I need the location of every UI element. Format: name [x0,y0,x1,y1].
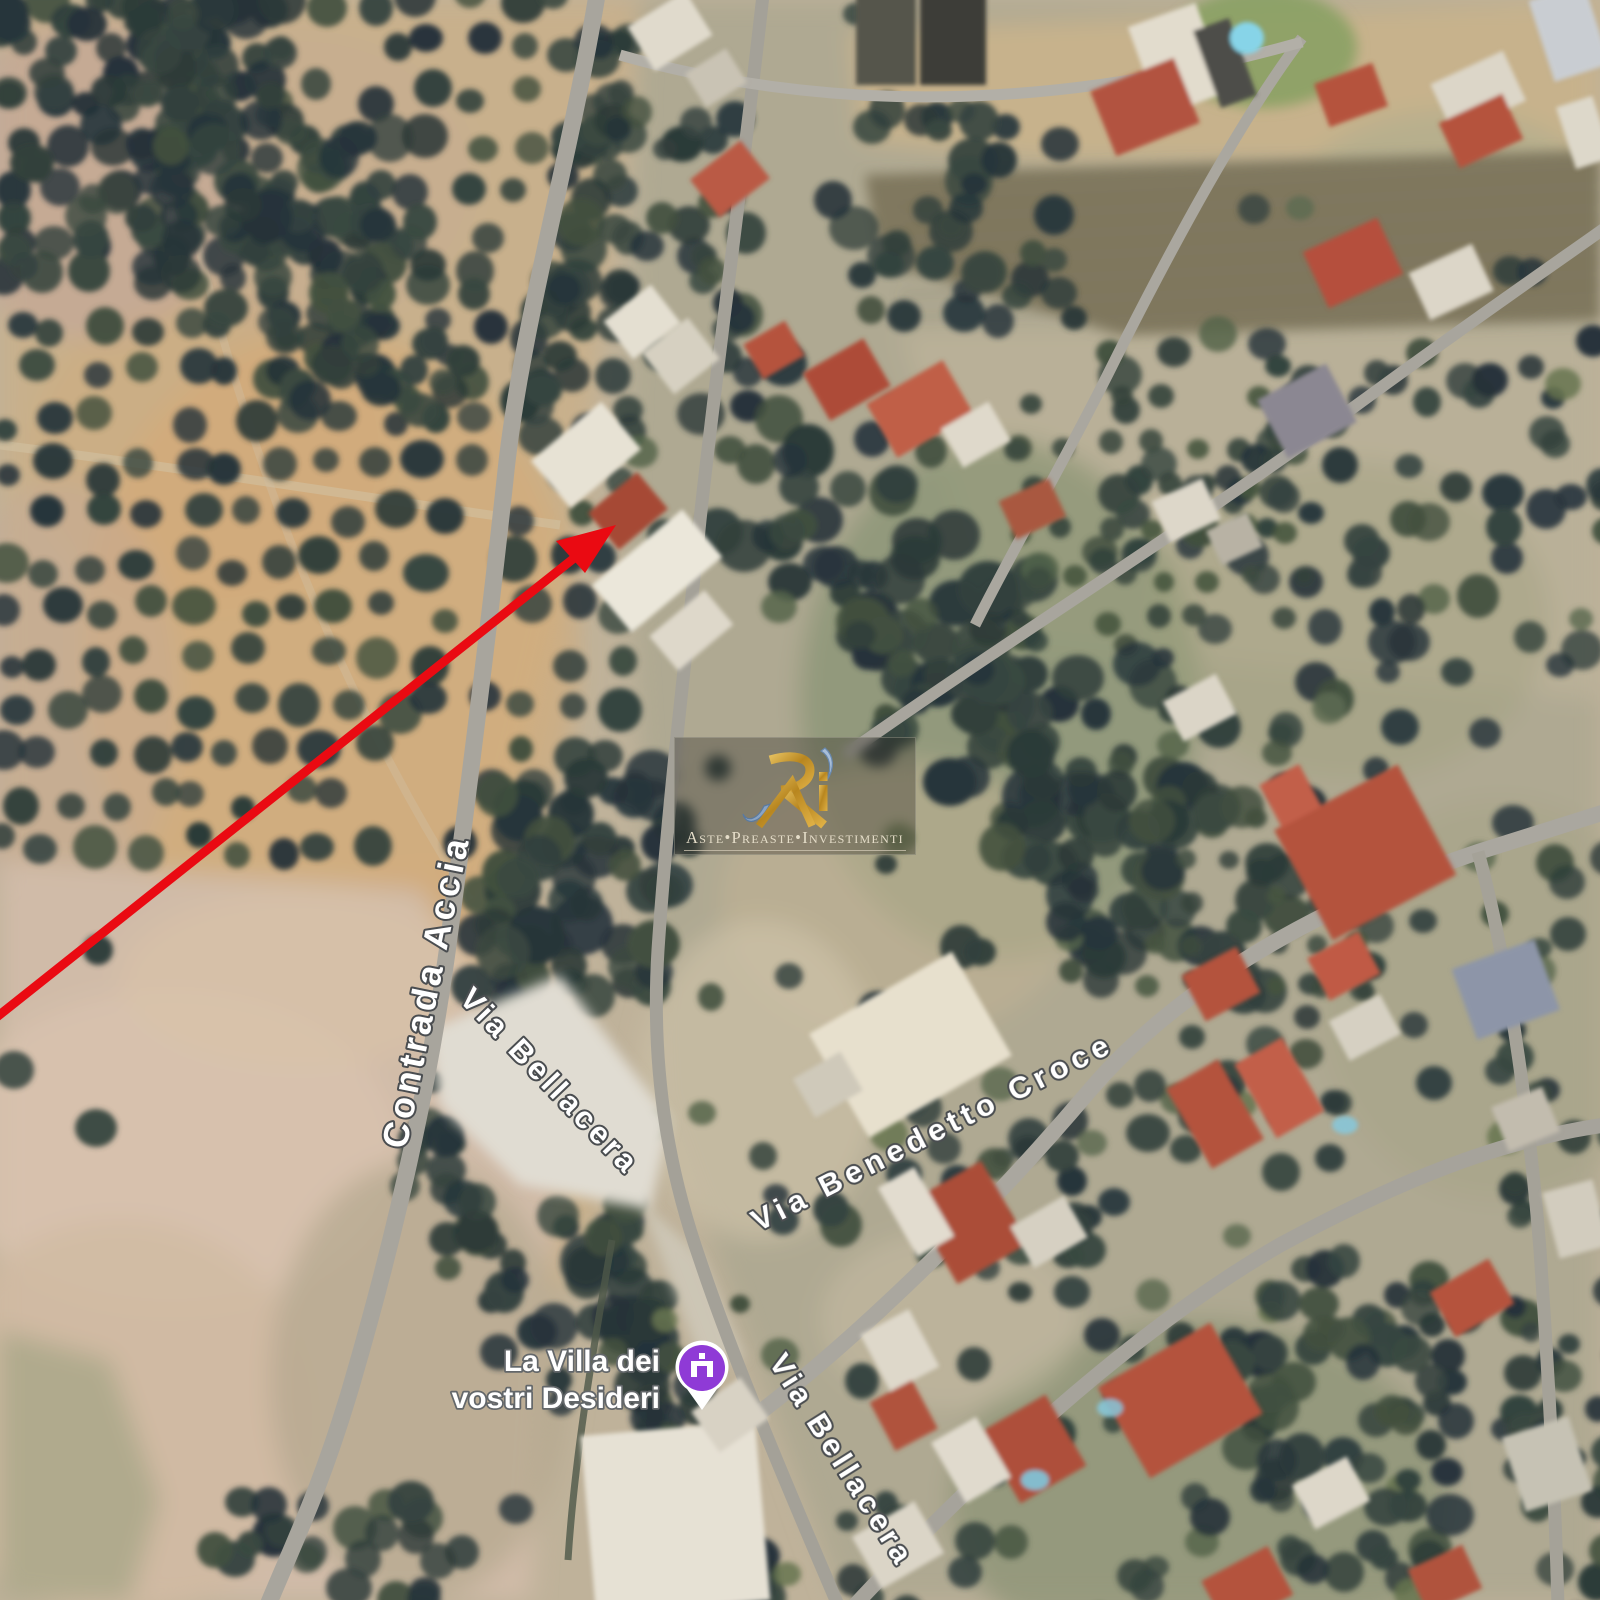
svg-text:La Villa dei: La Villa dei [504,1345,660,1378]
svg-text:vostri Desideri: vostri Desideri [452,1382,660,1415]
